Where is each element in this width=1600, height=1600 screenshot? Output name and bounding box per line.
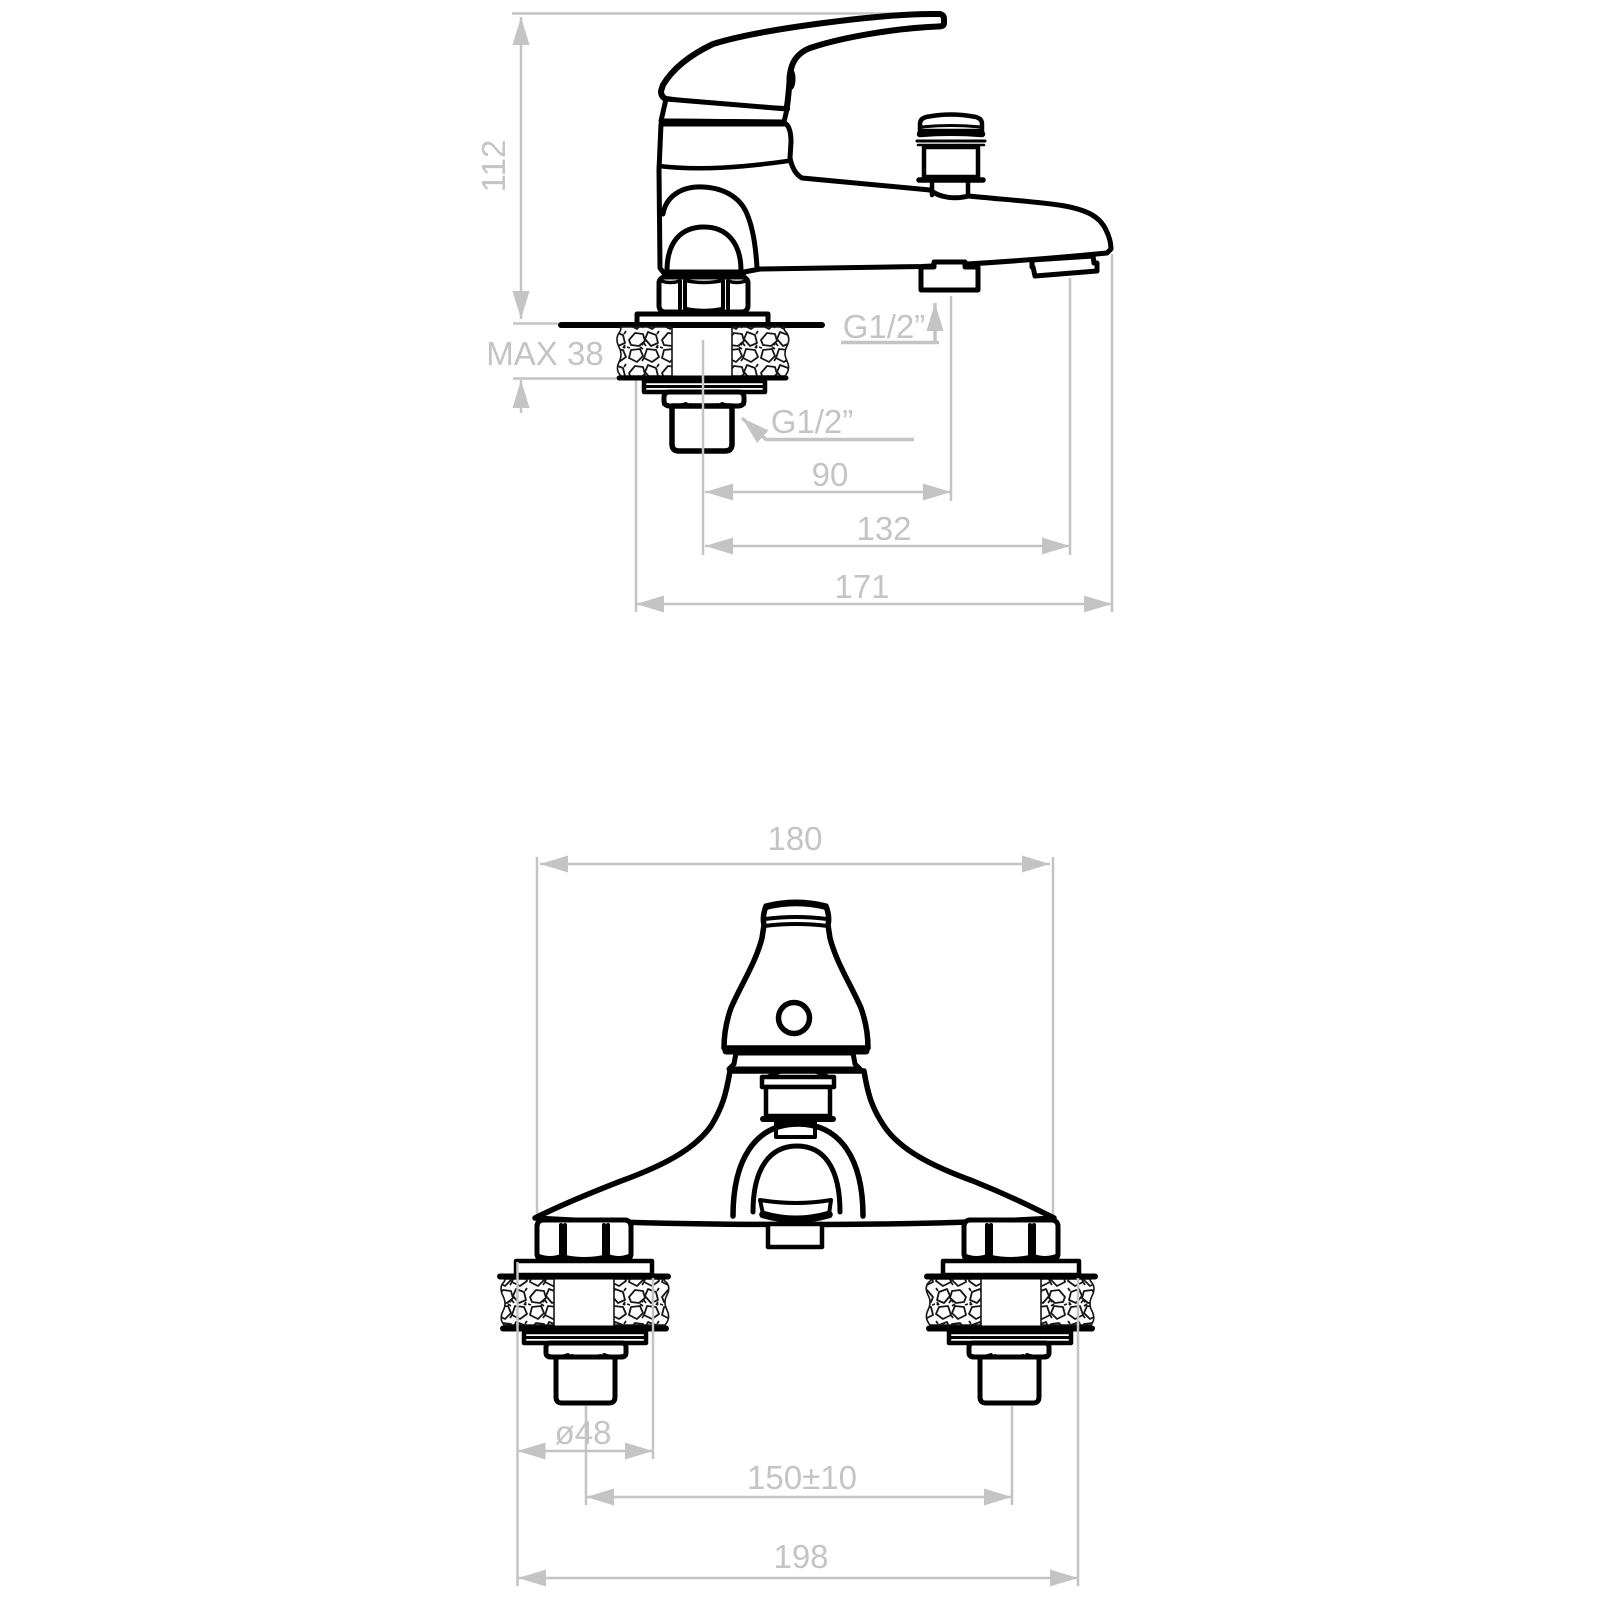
svg-text:180: 180 xyxy=(767,820,822,857)
svg-text:171: 171 xyxy=(834,568,889,605)
svg-text:G1/2”: G1/2” xyxy=(843,308,926,345)
svg-text:112: 112 xyxy=(475,140,512,193)
svg-text:MAX 38: MAX 38 xyxy=(486,335,603,372)
svg-text:G1/2”: G1/2” xyxy=(771,403,854,440)
svg-text:198: 198 xyxy=(773,1538,828,1575)
svg-text:90: 90 xyxy=(812,456,849,493)
svg-text:ø48: ø48 xyxy=(555,1414,612,1451)
svg-text:150±10: 150±10 xyxy=(747,1459,857,1496)
svg-text:132: 132 xyxy=(856,510,911,547)
